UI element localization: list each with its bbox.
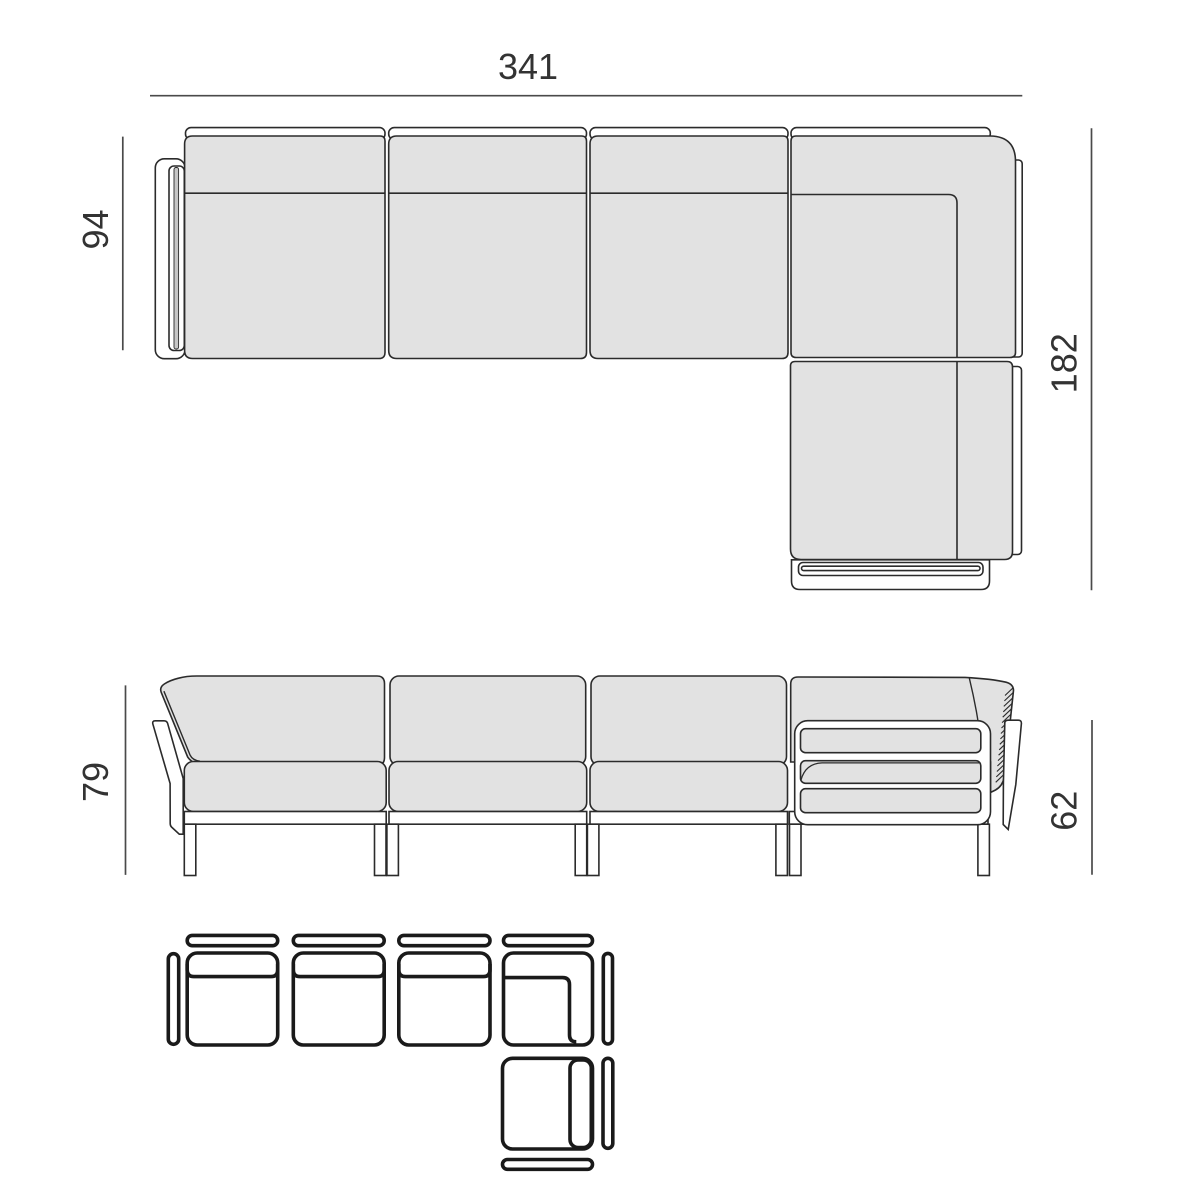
svg-text:341: 341 <box>498 46 558 87</box>
svg-text:79: 79 <box>75 762 116 802</box>
svg-text:94: 94 <box>75 209 116 249</box>
svg-text:182: 182 <box>1044 333 1085 393</box>
svg-text:62: 62 <box>1044 791 1085 831</box>
